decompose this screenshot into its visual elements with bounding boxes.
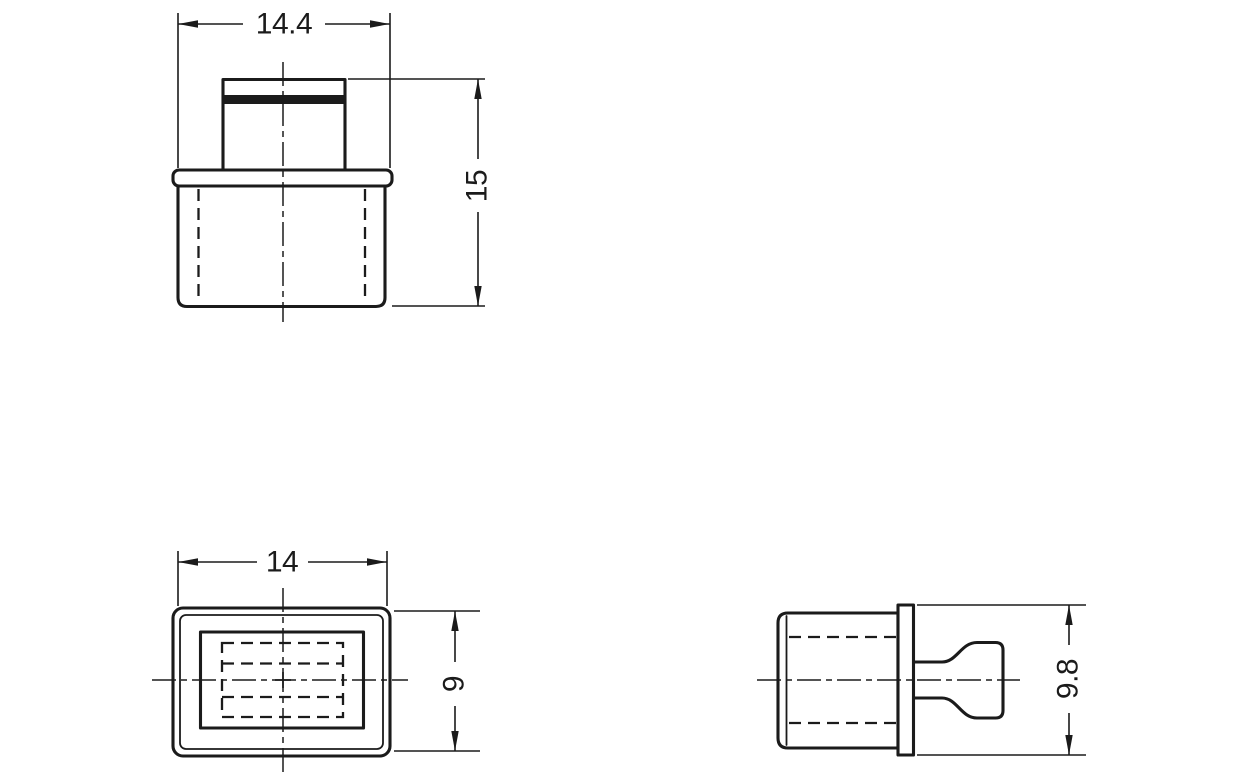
side-view: 9.8 xyxy=(757,605,1086,755)
top-depth-label: 9 xyxy=(438,676,471,692)
top-width-label: 14 xyxy=(266,546,298,579)
front-plug-outline xyxy=(223,80,345,173)
front-width-label: 14.4 xyxy=(256,8,312,41)
top-outer-outline xyxy=(173,608,390,756)
top-depth-dimension: 9 xyxy=(394,611,480,751)
side-height-label: 9.8 xyxy=(1052,659,1085,699)
front-body-outline xyxy=(178,185,385,307)
front-view: 14.4 15 xyxy=(173,8,494,323)
technical-drawing-canvas: 14.4 15 14 xyxy=(0,0,1233,776)
front-height-label: 15 xyxy=(461,170,494,202)
technical-drawing-page: 14.4 15 14 xyxy=(0,0,1233,776)
top-view: 14 9 xyxy=(152,546,480,775)
front-plug-band xyxy=(223,95,345,104)
